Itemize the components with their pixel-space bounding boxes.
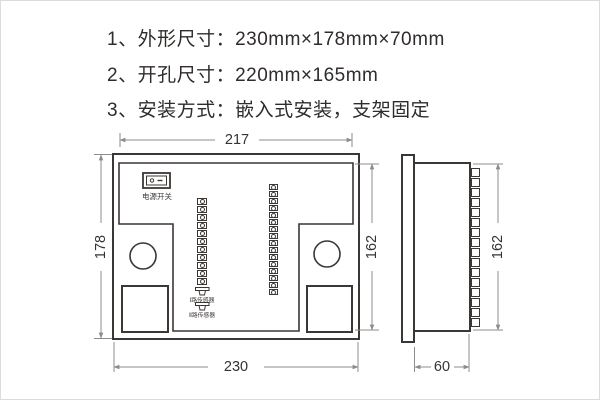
back-view: 电源开关 Ⅰ路传感器 Ⅱ路传感器 bbox=[113, 154, 359, 339]
terminal-cell bbox=[269, 191, 278, 197]
side-front-bezel bbox=[402, 155, 414, 342]
terminal-cell bbox=[197, 206, 207, 213]
terminal-strip-left bbox=[197, 198, 207, 285]
terminal-cell bbox=[471, 308, 480, 317]
sensor-connector-icon bbox=[199, 306, 206, 311]
terminal-cell bbox=[471, 288, 480, 297]
power-switch-frame bbox=[143, 173, 170, 188]
dimension-178: 178 bbox=[93, 155, 112, 339]
terminal-cell bbox=[471, 318, 480, 327]
terminal-cell bbox=[269, 275, 278, 281]
terminal-cell bbox=[269, 282, 278, 288]
terminal-cell bbox=[471, 298, 480, 307]
technical-drawing: 电源开关 Ⅰ路传感器 Ⅱ路传感器 bbox=[1, 1, 600, 400]
dim-bottom-value: 230 bbox=[224, 359, 248, 375]
dim-left-value: 178 bbox=[93, 235, 109, 259]
terminal-cell bbox=[197, 198, 207, 205]
dim-depth-value: 60 bbox=[434, 359, 450, 375]
dimension-diagram-page: 1、外形尺寸：230mm×178mm×70mm 2、开孔尺寸：220mm×165… bbox=[0, 0, 600, 400]
terminal-cell bbox=[269, 212, 278, 218]
terminal-cell bbox=[471, 218, 480, 227]
terminal-cell bbox=[269, 198, 278, 204]
terminal-cell bbox=[197, 270, 207, 277]
mounting-hole-left bbox=[130, 243, 156, 269]
bracket-cutout-left bbox=[122, 286, 168, 332]
terminal-cell bbox=[269, 184, 278, 190]
terminal-cell bbox=[471, 208, 480, 217]
power-switch-off-icon bbox=[150, 179, 153, 182]
terminal-strip-side bbox=[471, 168, 480, 327]
terminal-cell bbox=[471, 168, 480, 177]
mounting-hole-right bbox=[314, 241, 340, 267]
terminal-cell bbox=[471, 258, 480, 267]
terminal-cell bbox=[471, 188, 480, 197]
terminal-cell bbox=[197, 262, 207, 269]
terminal-cell bbox=[197, 246, 207, 253]
terminal-cell bbox=[197, 214, 207, 221]
terminal-cell bbox=[269, 219, 278, 225]
terminal-cell bbox=[471, 178, 480, 187]
power-switch-label: 电源开关 bbox=[142, 191, 172, 201]
terminal-cell bbox=[197, 222, 207, 229]
sensor-2-label: Ⅱ路传感器 bbox=[189, 311, 215, 319]
terminal-cell bbox=[197, 238, 207, 245]
sensor-connector-icon bbox=[199, 291, 206, 296]
terminal-cell bbox=[269, 289, 278, 295]
terminal-cell bbox=[471, 228, 480, 237]
terminal-cell bbox=[471, 268, 480, 277]
terminal-cell bbox=[471, 248, 480, 257]
dimension-60: 60 bbox=[415, 334, 470, 375]
terminal-cell bbox=[269, 247, 278, 253]
dimension-217: 217 bbox=[120, 132, 352, 148]
dim-side-height-value: 162 bbox=[490, 235, 506, 259]
dim-top-value: 217 bbox=[225, 132, 249, 148]
side-view bbox=[402, 155, 470, 342]
terminal-cell bbox=[197, 230, 207, 237]
terminal-cell bbox=[197, 278, 207, 285]
terminal-cell bbox=[269, 240, 278, 246]
terminal-cell bbox=[197, 254, 207, 261]
back-outer-frame bbox=[113, 154, 359, 339]
dim-right-value: 162 bbox=[364, 235, 380, 259]
terminal-cell bbox=[269, 254, 278, 260]
terminal-cell bbox=[471, 278, 480, 287]
terminal-cell bbox=[269, 233, 278, 239]
terminal-cell bbox=[269, 226, 278, 232]
terminal-cell bbox=[269, 205, 278, 211]
power-switch bbox=[143, 173, 170, 188]
terminal-cell bbox=[269, 268, 278, 274]
bracket-cutout-right bbox=[307, 286, 352, 332]
sensor-connector-1 bbox=[196, 288, 210, 296]
power-switch-rocker bbox=[147, 176, 167, 185]
terminal-strip-right bbox=[269, 184, 278, 295]
terminal-cell bbox=[471, 198, 480, 207]
terminal-cell bbox=[269, 261, 278, 267]
side-body bbox=[414, 163, 470, 331]
dimension-230: 230 bbox=[114, 342, 358, 375]
terminal-cell bbox=[471, 238, 480, 247]
